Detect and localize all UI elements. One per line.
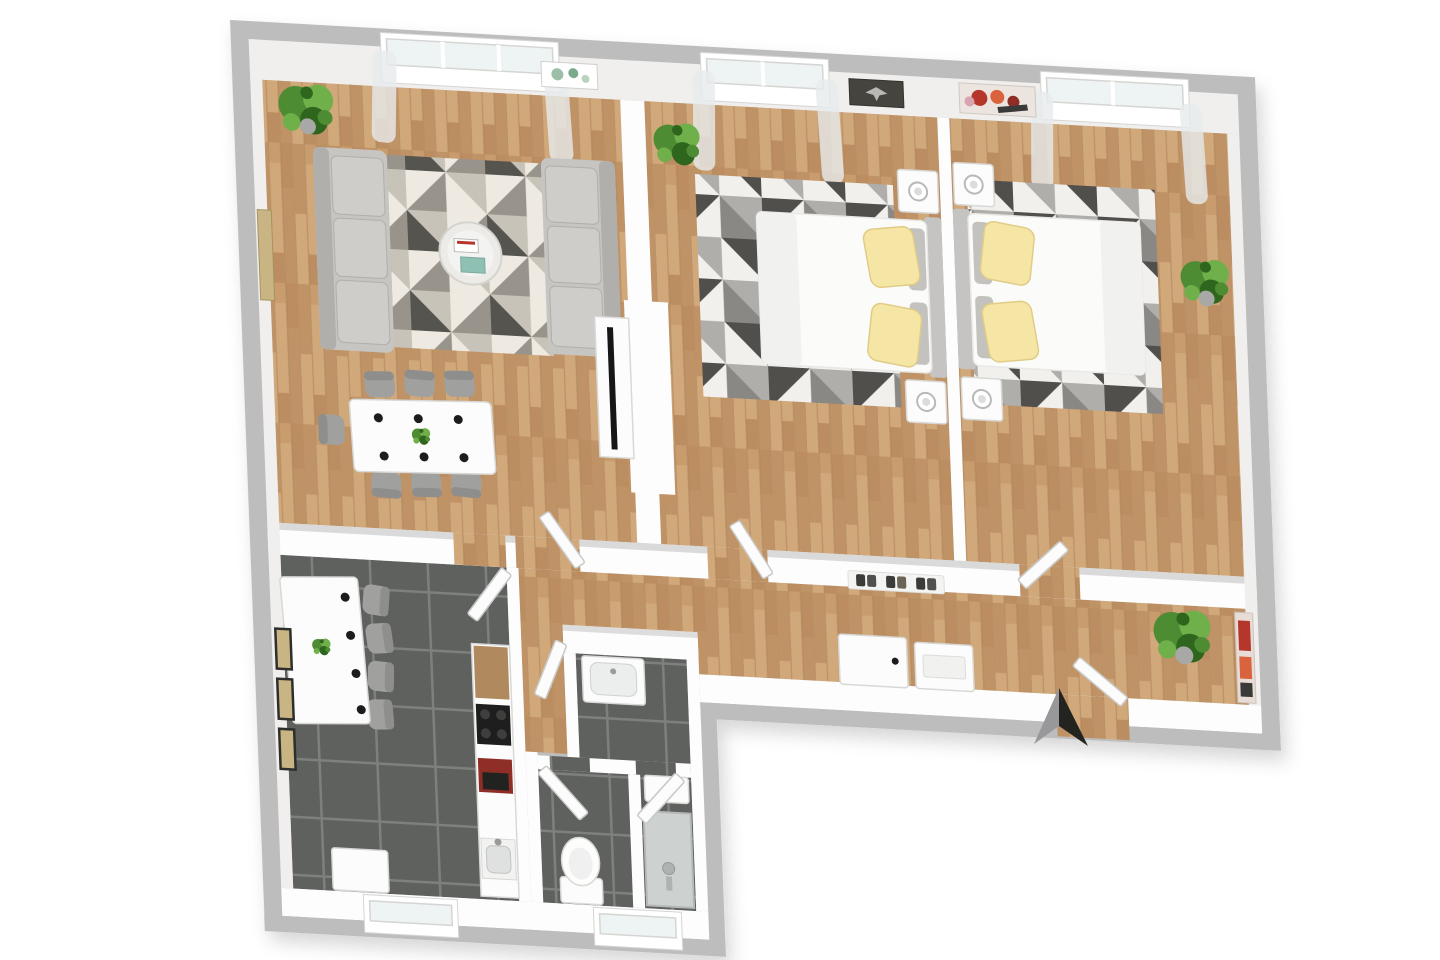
bed1-plant bbox=[653, 122, 701, 167]
dining-chair bbox=[444, 370, 476, 397]
worktop-wood bbox=[474, 646, 510, 700]
threshold-wc-door bbox=[550, 756, 591, 772]
wall-art-eagle bbox=[849, 79, 904, 108]
dining-chair bbox=[410, 471, 442, 498]
kitchen-chair bbox=[368, 660, 394, 693]
tray bbox=[461, 257, 486, 273]
table-plant bbox=[412, 427, 431, 445]
floorplan-canvas bbox=[0, 0, 1440, 960]
kitchen-cabinet bbox=[332, 848, 390, 893]
wall-art-red-abstract bbox=[959, 83, 1036, 117]
book bbox=[454, 239, 478, 253]
kitchen-chair bbox=[362, 583, 390, 617]
duvet-fold bbox=[1100, 221, 1146, 376]
shower-tray bbox=[644, 811, 695, 908]
hall-art-red bbox=[1235, 612, 1256, 703]
duvet-fold bbox=[756, 211, 802, 366]
window-living bbox=[380, 32, 560, 92]
kitchen-chair bbox=[364, 623, 394, 654]
curtain bbox=[372, 49, 397, 143]
lamp bbox=[973, 390, 992, 409]
window-kitchen bbox=[363, 894, 458, 937]
cooktop bbox=[476, 704, 512, 746]
dining-chair bbox=[364, 371, 396, 397]
window-bedroom-1 bbox=[700, 52, 830, 107]
dining-chair bbox=[405, 369, 435, 398]
lamp bbox=[917, 392, 936, 411]
window-bedroom-2 bbox=[1040, 71, 1190, 127]
sofa-left bbox=[313, 147, 395, 354]
pillow bbox=[862, 226, 922, 288]
threshold-kitchen-door bbox=[453, 532, 506, 567]
wall-art-tan bbox=[257, 210, 274, 301]
pillow bbox=[867, 302, 923, 369]
tv-sideboard bbox=[595, 316, 634, 458]
hall-desk bbox=[838, 634, 908, 688]
washbasin bbox=[582, 656, 646, 706]
pillow bbox=[979, 220, 1035, 287]
lamp bbox=[909, 182, 928, 201]
threshold-shower-door bbox=[636, 761, 677, 777]
floorplan bbox=[230, 20, 1290, 960]
lamp bbox=[964, 175, 983, 194]
window-bathroom bbox=[593, 907, 682, 950]
wall-art-green bbox=[541, 61, 598, 89]
floorplan-svg bbox=[0, 0, 1440, 960]
dining-chair bbox=[371, 470, 401, 499]
shoe-cabinet bbox=[914, 642, 974, 691]
dining-chair bbox=[318, 414, 345, 446]
pillow bbox=[981, 301, 1041, 363]
kitchen-table-plant bbox=[312, 638, 331, 656]
